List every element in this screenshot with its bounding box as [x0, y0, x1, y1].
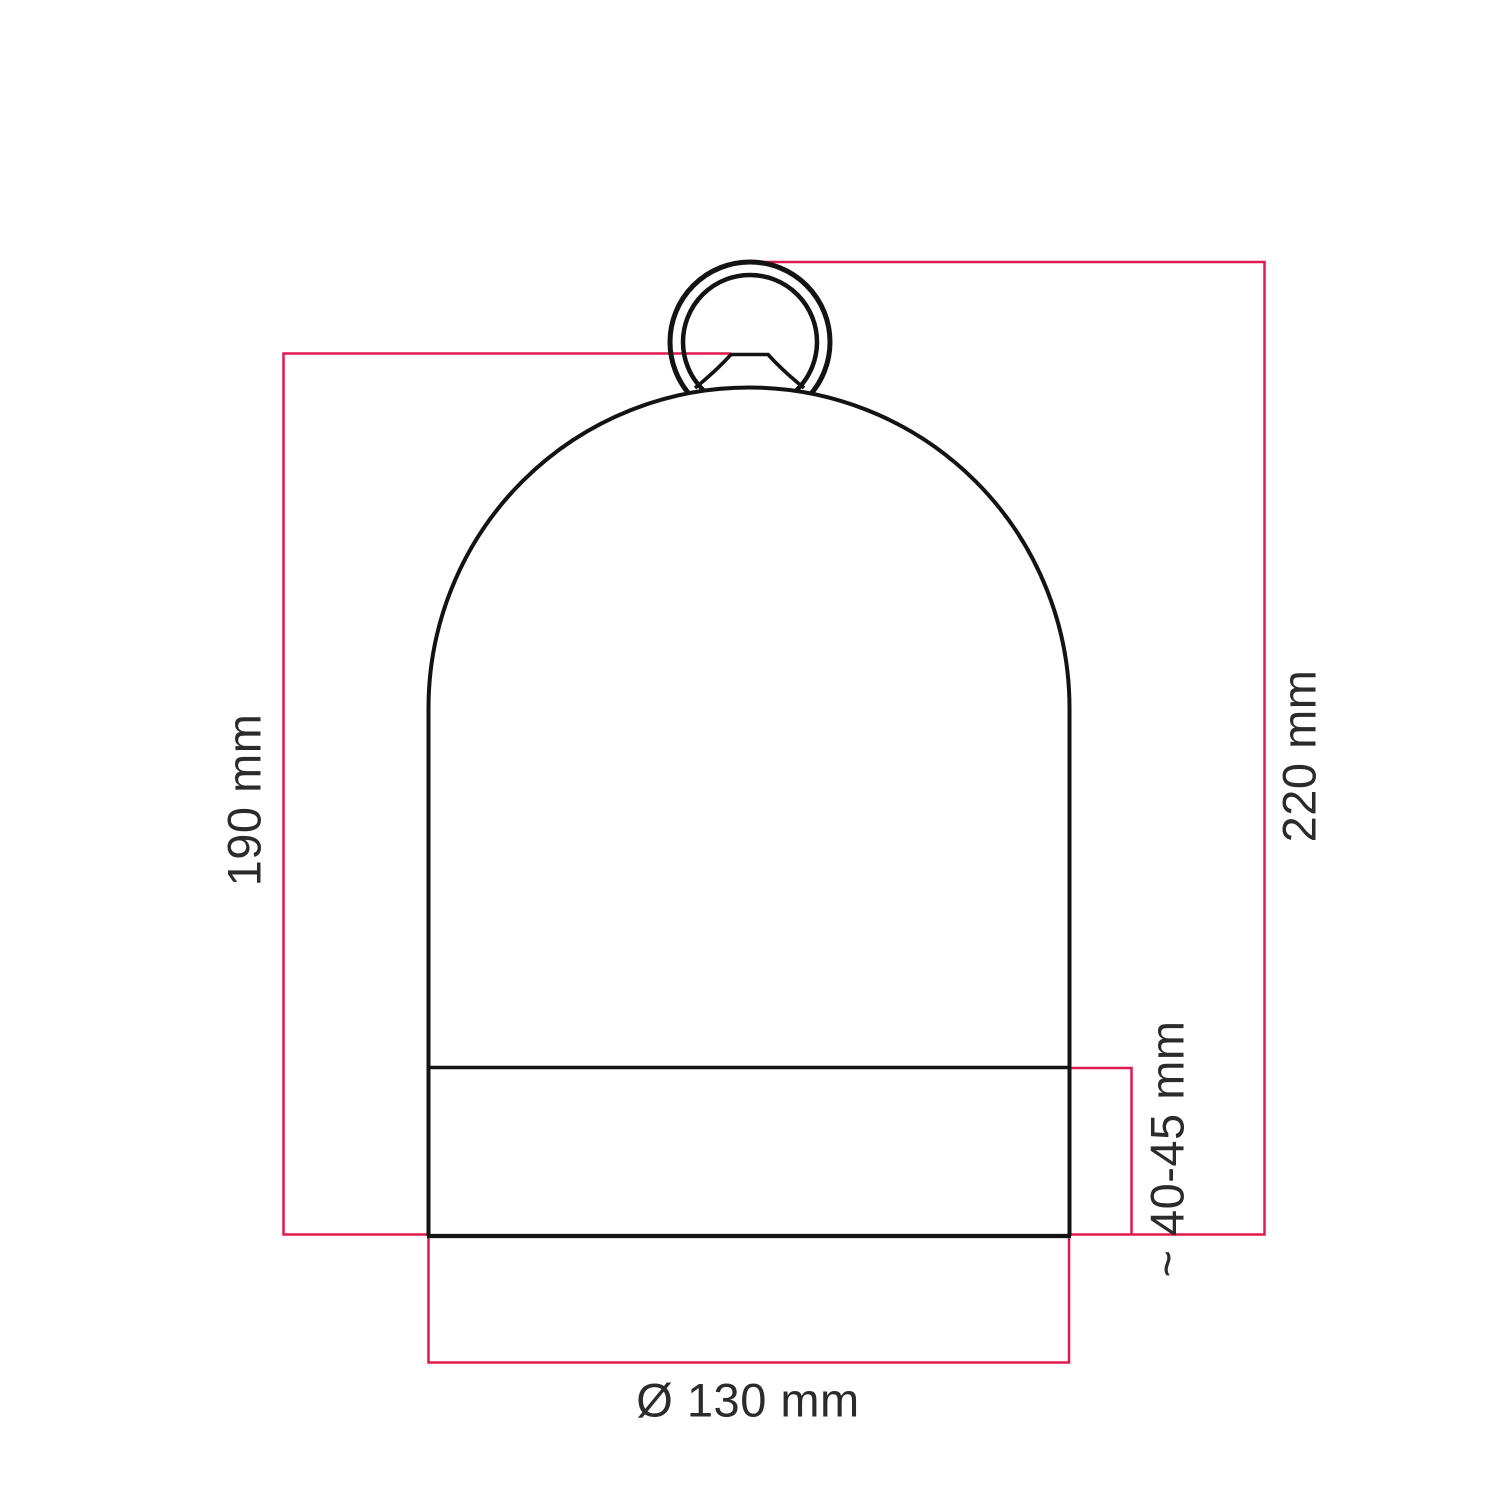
label-base-height: ~ 40-45 mm: [1141, 1020, 1194, 1277]
ring-mount-knob: [695, 355, 804, 389]
bell-outline: [427, 262, 1071, 1236]
bell-drawing-svg: 190 mm 220 mm ~ 40-45 mm Ø 130 mm: [0, 0, 1500, 1500]
label-left-height: 190 mm: [218, 714, 271, 887]
dimension-line-base-height: [1069, 1068, 1132, 1235]
bell-dimension-drawing: 190 mm 220 mm ~ 40-45 mm Ø 130 mm: [0, 0, 1500, 1500]
label-diameter: Ø 130 mm: [636, 1374, 859, 1427]
dimension-line-diameter: [429, 1235, 1070, 1363]
dome-body: [429, 387, 1070, 1236]
label-right-height: 220 mm: [1273, 670, 1326, 843]
